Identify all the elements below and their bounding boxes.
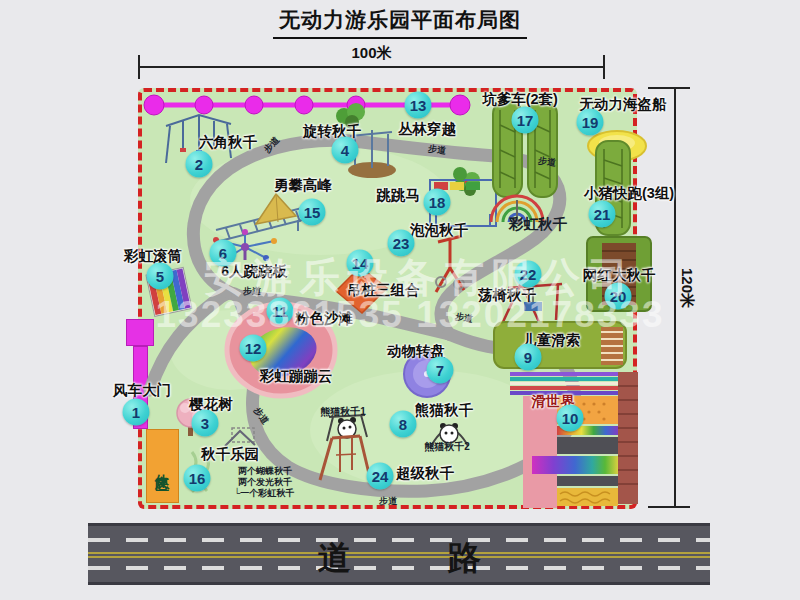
attraction-badge: 22: [515, 261, 542, 288]
attraction-label: 熊猫秋千: [415, 401, 473, 420]
attraction-label: 跳跳马: [376, 186, 420, 205]
attraction-badge: 24: [367, 463, 394, 490]
attraction-label: 泡泡秋千: [410, 221, 468, 240]
attraction-label: 坑爹车(2套): [482, 90, 558, 109]
footpath-label: 步道: [379, 495, 397, 508]
attraction-label: 丛林穿越: [398, 120, 456, 139]
attraction-badge: 2: [186, 151, 213, 178]
attraction-badge: 14: [347, 250, 374, 277]
attraction-badge: 19: [577, 109, 604, 136]
attraction-badge: 21: [589, 201, 616, 228]
attraction-label: 6人跷跷板: [221, 262, 287, 281]
footpath-label: 步道: [261, 134, 283, 156]
attraction-label: 彩虹蹦蹦云: [260, 367, 333, 386]
attraction-badge: 23: [388, 230, 415, 257]
attraction-badge: 5: [147, 263, 174, 290]
attraction-label: 彩虹滚筒: [124, 247, 182, 266]
attraction-badge: 3: [192, 410, 219, 437]
annotation-label: 彩虹秋千: [509, 215, 567, 234]
attraction-label: 吊桩三组合: [347, 281, 420, 300]
attraction-badge: 18: [424, 189, 451, 216]
attraction-label: 风车大门: [113, 381, 171, 400]
attraction-badge: 7: [427, 357, 454, 384]
footpath-label: 步道: [427, 142, 447, 157]
footpath-label: 步道: [251, 405, 272, 427]
attraction-badge: 4: [332, 137, 359, 164]
attraction-label: 粉色沙滩: [295, 309, 353, 328]
attraction-label: 超级秋千: [396, 464, 454, 483]
attraction-badge: 11: [267, 298, 294, 325]
footpath-label: 步道: [537, 154, 557, 169]
annotation-label: 熊猫秋千2: [424, 440, 470, 454]
attraction-badge: 17: [512, 107, 539, 134]
attraction-badge: 16: [184, 465, 211, 492]
annotation-label: 熊猫秋千1: [320, 405, 366, 419]
annotation-label: └一个彩虹秋千: [234, 487, 294, 500]
attraction-label: 旋转秋千: [303, 122, 361, 141]
attraction-badge: 20: [605, 283, 632, 310]
footpath-label: 步道: [454, 310, 474, 326]
attraction-label: 六角秋千: [199, 133, 257, 152]
attraction-label: 荡椅秋千: [478, 286, 536, 305]
attraction-badge: 9: [515, 344, 542, 371]
attraction-label: 秋千乐园: [201, 445, 259, 464]
labels-overlay: 风车大门1六角秋千2樱花树3旋转秋千4彩虹滚筒56人跷跷板6动物转盘7熊猫秋千8…: [0, 0, 800, 600]
attraction-label: 勇攀高峰: [274, 176, 332, 195]
attraction-badge: 10: [557, 405, 584, 432]
attraction-label: 小猪快跑(3组): [584, 184, 674, 203]
attraction-badge: 1: [123, 399, 150, 426]
attraction-badge: 15: [299, 199, 326, 226]
footpath-label: 步道: [243, 285, 261, 298]
attraction-badge: 12: [240, 335, 267, 362]
attraction-badge: 13: [405, 92, 432, 119]
screenshot: 无动力游乐园平面布局图 100米 120米: [0, 0, 800, 600]
attraction-badge: 8: [390, 411, 417, 438]
attraction-badge: 6: [210, 240, 237, 267]
